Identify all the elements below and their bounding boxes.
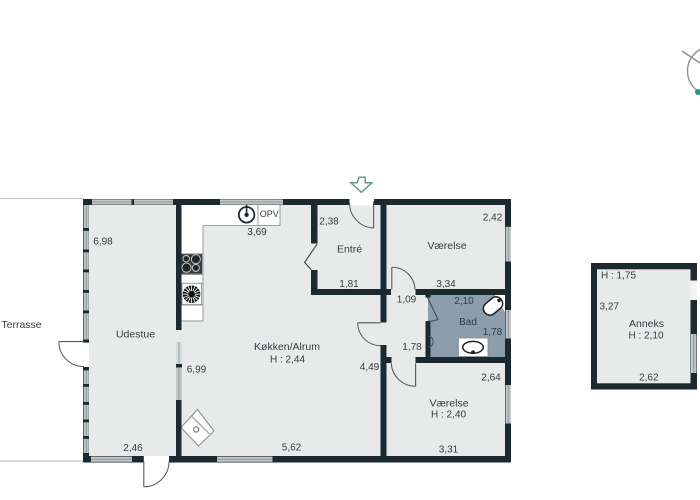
svg-text:5,62: 5,62 <box>282 443 302 454</box>
svg-text:2,42: 2,42 <box>483 213 503 224</box>
svg-text:3,69: 3,69 <box>247 227 267 238</box>
svg-text:Bad: Bad <box>459 317 477 328</box>
svg-text:Værelse: Værelse <box>427 240 466 252</box>
svg-text:3,34: 3,34 <box>436 279 456 290</box>
svg-text:Køkken/Alrum: Køkken/Alrum <box>254 341 320 353</box>
svg-text:6,99: 6,99 <box>187 365 207 376</box>
svg-text:4,49: 4,49 <box>360 362 380 373</box>
svg-text:Værelse: Værelse <box>429 398 468 410</box>
svg-text:2,10: 2,10 <box>454 296 474 307</box>
svg-text:Udestue: Udestue <box>116 329 155 341</box>
svg-text:2,64: 2,64 <box>481 373 501 384</box>
svg-text:H : 1,75: H : 1,75 <box>601 271 636 282</box>
svg-text:Terrasse: Terrasse <box>1 319 41 331</box>
svg-text:3,31: 3,31 <box>439 445 459 456</box>
svg-text:1,09: 1,09 <box>397 295 417 306</box>
svg-text:H : 2,40: H : 2,40 <box>431 410 466 421</box>
svg-text:OPV: OPV <box>260 209 279 219</box>
svg-text:1,78: 1,78 <box>402 342 422 353</box>
svg-text:Entré: Entré <box>337 244 362 256</box>
svg-text:H : 2,10: H : 2,10 <box>628 331 663 342</box>
svg-text:1,81: 1,81 <box>339 279 359 290</box>
svg-text:2,62: 2,62 <box>639 373 659 384</box>
svg-text:2,46: 2,46 <box>123 443 143 454</box>
svg-text:2,38: 2,38 <box>319 217 339 228</box>
svg-text:3,27: 3,27 <box>600 302 620 313</box>
svg-text:1,78: 1,78 <box>483 327 503 338</box>
svg-text:Anneks: Anneks <box>629 318 664 330</box>
svg-text:H : 2,44: H : 2,44 <box>270 355 305 366</box>
svg-text:6,98: 6,98 <box>93 237 113 248</box>
